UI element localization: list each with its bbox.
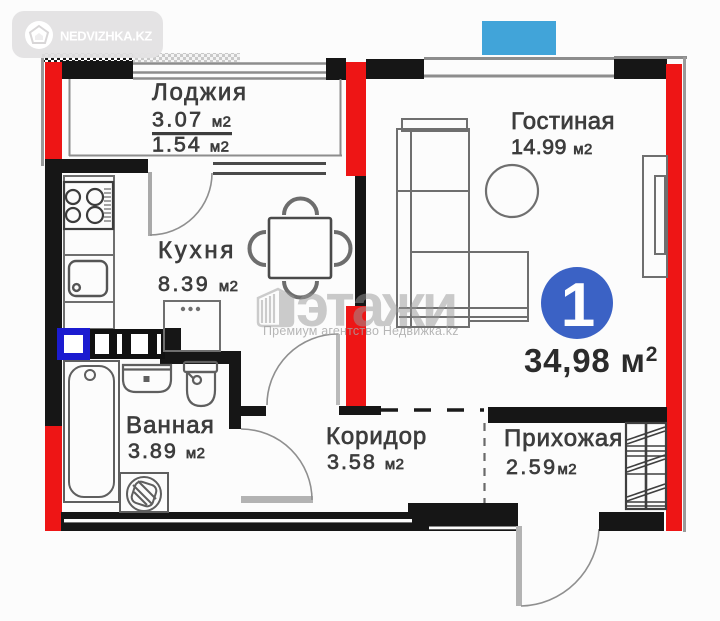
svg-text:Гостиная: Гостиная (511, 108, 615, 135)
svg-text:Лоджия: Лоджия (152, 79, 248, 106)
svg-text:Премиум агентство Недвижка.kz: Премиум агентство Недвижка.kz (263, 324, 459, 338)
svg-text:Коридор: Коридор (326, 423, 427, 450)
svg-text:Кухня: Кухня (158, 237, 236, 264)
svg-text:Прихожая: Прихожая (504, 425, 623, 452)
svg-text:34,98 м2: 34,98 м2 (524, 342, 658, 379)
svg-text:Ванная: Ванная (126, 412, 215, 439)
svg-text:1: 1 (561, 271, 595, 340)
svg-text:NEDVIZHKA.KZ: NEDVIZHKA.KZ (60, 29, 152, 44)
